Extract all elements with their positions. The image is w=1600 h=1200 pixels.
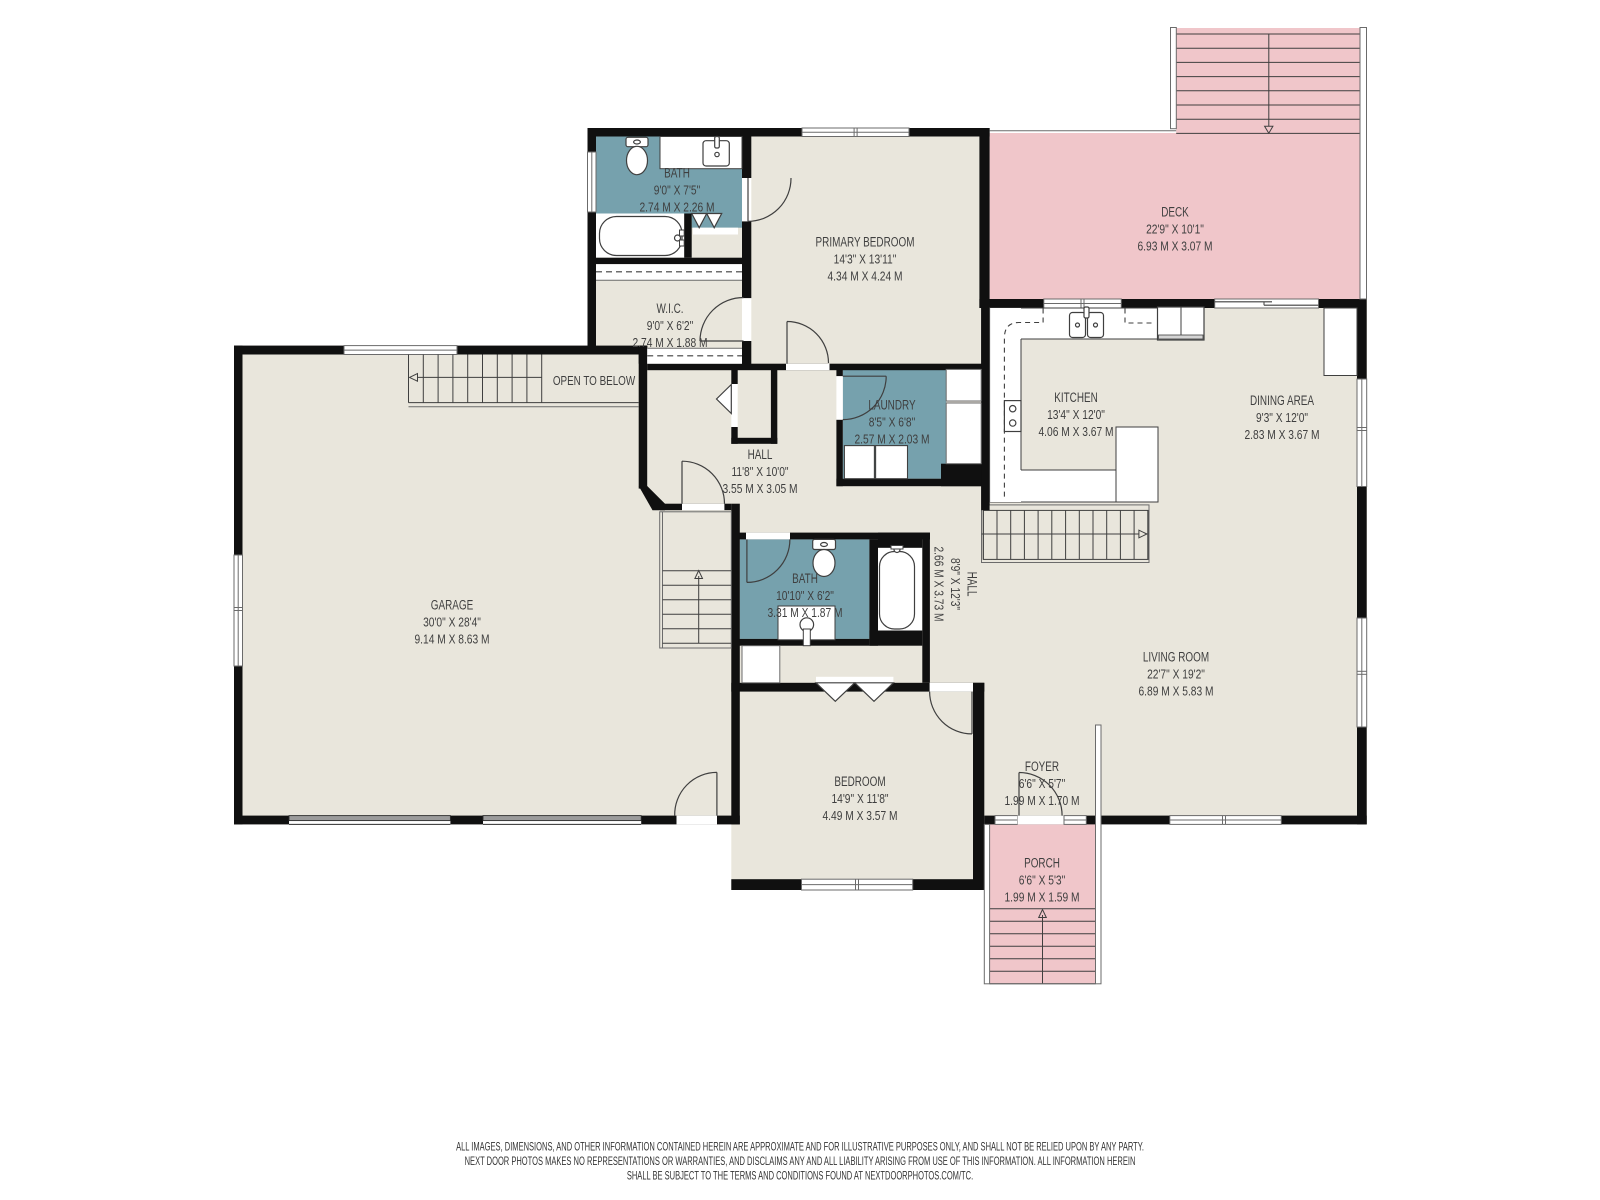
svg-text:8'5" X 6'8": 8'5" X 6'8"	[869, 417, 915, 430]
svg-text:ALL IMAGES, DIMENSIONS, AND OT: ALL IMAGES, DIMENSIONS, AND OTHER INFORM…	[456, 1141, 1144, 1154]
svg-text:30'0" X 28'4": 30'0" X 28'4"	[423, 617, 481, 630]
svg-text:4.06 M X 3.67 M: 4.06 M X 3.67 M	[1038, 426, 1113, 439]
svg-text:HALL: HALL	[964, 572, 980, 597]
svg-text:LIVING ROOM: LIVING ROOM	[1143, 649, 1209, 665]
svg-text:11'8" X 10'0": 11'8" X 10'0"	[731, 466, 788, 479]
svg-text:2.74 M X 1.88 M: 2.74 M X 1.88 M	[632, 337, 707, 350]
svg-text:9'0" X 6'2": 9'0" X 6'2"	[647, 320, 693, 333]
svg-text:4.34 M X 4.24 M: 4.34 M X 4.24 M	[827, 271, 902, 284]
svg-text:LAUNDRY: LAUNDRY	[868, 397, 915, 413]
svg-text:14'3" X 13'11": 14'3" X 13'11"	[834, 254, 897, 267]
svg-text:BEDROOM: BEDROOM	[834, 773, 885, 789]
svg-text:13'4" X 12'0": 13'4" X 12'0"	[1047, 409, 1105, 422]
svg-text:DINING AREA: DINING AREA	[1250, 392, 1314, 408]
svg-text:10'10" X 6'2": 10'10" X 6'2"	[776, 590, 834, 603]
svg-text:4.49 M X 3.57 M: 4.49 M X 3.57 M	[822, 810, 897, 823]
svg-text:14'9" X 11'8": 14'9" X 11'8"	[831, 793, 888, 806]
svg-text:3.55 M X 3.05 M: 3.55 M X 3.05 M	[722, 483, 797, 496]
svg-text:2.83 M X 3.67 M: 2.83 M X 3.67 M	[1244, 429, 1319, 442]
svg-text:PORCH: PORCH	[1024, 855, 1060, 871]
svg-text:KITCHEN: KITCHEN	[1054, 389, 1098, 405]
svg-text:2.57 M X 2.03 M: 2.57 M X 2.03 M	[854, 434, 929, 447]
svg-text:BATH: BATH	[792, 570, 818, 586]
svg-text:9'3" X 12'0": 9'3" X 12'0"	[1256, 412, 1308, 425]
svg-text:1.99 M X 1.70 M: 1.99 M X 1.70 M	[1004, 795, 1079, 808]
svg-text:W.I.C.: W.I.C.	[656, 300, 683, 316]
svg-text:6'6" X 5'3": 6'6" X 5'3"	[1019, 875, 1065, 888]
svg-text:6'6" X 5'7": 6'6" X 5'7"	[1019, 778, 1065, 791]
svg-text:3.31 M X 1.87 M: 3.31 M X 1.87 M	[767, 607, 842, 620]
svg-text:1.99 M X 1.59 M: 1.99 M X 1.59 M	[1004, 892, 1079, 905]
svg-text:GARAGE: GARAGE	[431, 597, 473, 613]
svg-text:SHALL BE SUBJECT TO THE TERMS: SHALL BE SUBJECT TO THE TERMS AND CONDIT…	[627, 1170, 973, 1183]
svg-text:9.14 M X 8.63 M: 9.14 M X 8.63 M	[414, 634, 489, 647]
svg-text:HALL: HALL	[748, 446, 773, 462]
svg-text:FOYER: FOYER	[1025, 758, 1059, 774]
svg-text:9'0" X 7'5": 9'0" X 7'5"	[654, 185, 700, 198]
svg-text:6.93 M X 3.07 M: 6.93 M X 3.07 M	[1137, 241, 1212, 254]
svg-text:OPEN TO BELOW: OPEN TO BELOW	[553, 375, 635, 388]
svg-text:2.66 M X 3.73 M: 2.66 M X 3.73 M	[931, 546, 944, 621]
svg-text:2.74 M X 2.26 M: 2.74 M X 2.26 M	[639, 202, 714, 215]
svg-text:BATH: BATH	[664, 165, 690, 181]
svg-text:22'7" X 19'2": 22'7" X 19'2"	[1147, 669, 1205, 682]
svg-text:PRIMARY BEDROOM: PRIMARY BEDROOM	[816, 234, 915, 250]
svg-text:22'9" X 10'1": 22'9" X 10'1"	[1146, 224, 1204, 237]
svg-text:DECK: DECK	[1161, 204, 1189, 220]
svg-text:NEXT DOOR PHOTOS MAKES NO REPR: NEXT DOOR PHOTOS MAKES NO REPRESENTATION…	[465, 1156, 1136, 1169]
svg-text:8'9" X 12'3": 8'9" X 12'3"	[948, 558, 961, 610]
svg-text:6.89 M X 5.83 M: 6.89 M X 5.83 M	[1138, 686, 1213, 699]
